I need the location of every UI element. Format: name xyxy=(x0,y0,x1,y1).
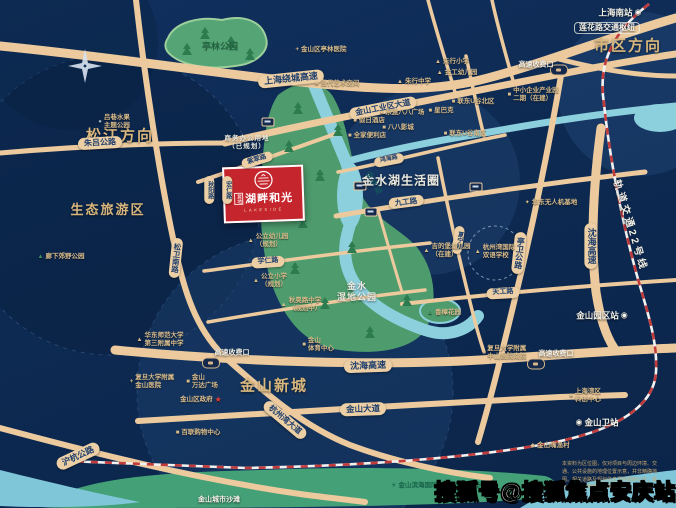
poi-familymart-label: 全家便利店 xyxy=(354,132,387,140)
poi-jinshan-wanda-plaza-label: 金山万达广场 xyxy=(192,374,218,390)
poi-east-china-drone-base-label: 华东无人机基地 xyxy=(532,199,578,207)
poi-public-primary-planned-school-icon: ▲ xyxy=(253,278,259,284)
poi-bailian-shopping-center: ■百联购物中心 xyxy=(176,429,221,437)
sohu-watermark: 搜狐号@搜狐焦点安庆站 xyxy=(435,476,676,506)
station-shanghai-south-label: 上海南站 xyxy=(599,8,633,19)
road-topright-b xyxy=(428,0,455,92)
label-city-beach-label: 金山城市沙滩 xyxy=(198,497,240,506)
poi-qiuhao-middle-planned-school-icon: ▲ xyxy=(281,302,287,308)
poi-modern-art-space-label: 当代艺术空间 xyxy=(320,80,359,88)
station-jinshanwei-label: 金山卫站 xyxy=(584,418,618,429)
poi-zhuhang-primary-school-label: 朱行小学 xyxy=(443,58,469,66)
poi-public-kindergarten-planned-label: 公立幼儿园（规划） xyxy=(256,233,289,249)
area-business-office-plot: 商务办公用地（已规划） xyxy=(225,135,270,151)
poi-jinshan-wanda-plaza: ■金山万达广场 xyxy=(186,374,218,390)
area-jinshan-new-town-label: 金山新城 xyxy=(240,378,308,397)
area-eco-tourism-label: 生态旅游区 xyxy=(70,202,145,218)
poi-lvxiang-fruit-park: ●吕巷水果主题公园 xyxy=(98,114,130,130)
poi-familymart: ■全家便利店 xyxy=(348,132,386,140)
poi-jingong-kindergarten: ▲金工幼儿园 xyxy=(437,69,477,77)
direction-downtown: 市区方向 xyxy=(594,38,662,57)
poi-jinshan-district-government-star-icon: ★ xyxy=(215,396,222,404)
road-zhulv-highway-label: 朱吕公路 xyxy=(84,137,116,149)
poi-sme-industrial-park-phase2-label: 中小企业产业园二期（在建） xyxy=(513,87,559,103)
poi-liandong-ugu-south: ■联东U谷南区 xyxy=(444,130,487,138)
disclaimer-line: 本资料为区位图，仅对项目与周边环境、交 xyxy=(562,461,672,469)
poi-ecnu-no3-affiliated-middle-label: 华东师范大学第三附属中学 xyxy=(144,332,183,348)
station-jinshan-park-station-icon: ◉ xyxy=(621,312,628,320)
road-qiuyang-road: 秋阳路 xyxy=(204,176,214,204)
poi-jinshanzui-fishing-village: ◆金山嘴渔村 xyxy=(530,442,569,450)
road-xueren-road-label: 学仁路 xyxy=(257,257,279,267)
poi-liandong-ugu-north-bldg-icon: ■ xyxy=(452,99,456,105)
area-eco-tourism: 生态旅游区 xyxy=(70,202,145,218)
poi-jingong-kindergarten-school-icon: ▲ xyxy=(437,70,443,76)
poi-jinshan-district-government: 金山区政府★ xyxy=(180,396,222,404)
poi-east-china-drone-base-drone-icon: ✦ xyxy=(525,200,530,206)
poi-holiday-hotel-label: 假日酒店 xyxy=(359,117,385,125)
poi-zhuhang-middle-school: ▲朱行中学 xyxy=(397,78,431,86)
station-shanghai-south-station-icon: ◉ xyxy=(635,9,642,17)
poi-baba-plaza-label: 东渡八八广场 xyxy=(385,109,424,117)
toll-gate-north-label: 高速收费口 xyxy=(519,62,554,71)
poi-langxia-country-park: ▲廊下郊野公园 xyxy=(38,253,85,261)
road-jiugong-road-label: 九工路 xyxy=(394,196,417,208)
poi-jinshan-sports-center-label: 金山体育中心 xyxy=(308,337,334,353)
poi-sme-industrial-park-phase2-bldg-icon: ■ xyxy=(507,92,511,98)
project-marker: 复地 湖畔和光 LAKESIDE xyxy=(222,165,305,224)
project-english-name: LAKESIDE xyxy=(244,206,284,212)
project-logo-icon xyxy=(253,170,274,191)
location-map: 复地 湖畔和光 LAKESIDE 松江方向市区方向生态旅游区金山新城金水湖生活圈… xyxy=(0,0,676,508)
poi-hangzhou-bay-bilingual-school: ▲杭州湾国际双语学校 xyxy=(475,244,515,260)
poi-baba-cinema-bldg-icon: ■ xyxy=(382,125,386,131)
poi-liandong-ugu-south-label: 联东U谷南区 xyxy=(449,130,486,138)
poi-jingong-kindergarten-label: 金工幼儿园 xyxy=(445,69,478,77)
poi-bay-area-innovation-center-bldg-icon: ■ xyxy=(569,393,573,399)
road-tiangong-road-label: 天工路 xyxy=(492,288,513,298)
poi-ecnu-no3-affiliated-middle: ▲华东师范大学第三附属中学 xyxy=(137,332,184,348)
road-shenhai-expressway-v-label: 沈海高速 xyxy=(585,228,596,264)
road-xueren-road: 学仁路 xyxy=(251,255,285,268)
hub-lianhua-road-label: 莲花路交通枢纽 xyxy=(579,23,635,33)
area-business-office-plot-label: 商务办公用地（已规划） xyxy=(225,135,270,151)
poi-baba-plaza-bldg-icon: ■ xyxy=(380,110,384,116)
toll-booth-icon-east xyxy=(527,359,545,370)
road-jinshan-avenue-label: 金山大道 xyxy=(346,403,380,415)
poi-public-kindergarten-planned-school-icon: ▲ xyxy=(248,238,254,244)
station-jinshanwei: ◉金山卫站 xyxy=(576,418,619,429)
road-shenhai-expressway-h-label: 沈海高速 xyxy=(350,360,386,373)
poi-public-primary-planned-label: 公立小学（规划） xyxy=(261,273,287,289)
poi-kidcastle-kindergarten-label: 吉的堡幼儿园（在建） xyxy=(431,243,470,259)
poi-fudan-jinshan-hospital-hosp-icon: + xyxy=(130,379,134,385)
road-tiangong xyxy=(402,280,676,304)
poi-zhuhang-middle-school-label: 朱行中学 xyxy=(405,78,431,86)
poi-hangzhou-bay-bilingual-school-label: 杭州湾国际双语学校 xyxy=(483,244,516,260)
poi-holiday-hotel-bldg-icon: ■ xyxy=(353,118,357,124)
poi-jinshan-sports-center: ■金山体育中心 xyxy=(302,337,334,353)
poi-tinglin-hospital: +金山区亭林医院 xyxy=(295,46,346,54)
station-jinshanwei-station-icon: ◉ xyxy=(576,419,583,427)
bus-stop-icon-1 xyxy=(262,118,275,127)
poi-camphor-garden: ▲香樟花园 xyxy=(427,309,461,317)
toll-gate-north: 高速收费口 xyxy=(519,62,554,71)
poi-liandong-ugu-north-label: 联东U谷北区 xyxy=(457,98,494,106)
road-zhulv-highway: 朱吕公路 xyxy=(78,136,123,150)
poi-bailian-shopping-center-label: 百联购物中心 xyxy=(181,429,220,437)
poi-zhuhang-middle-school-school-icon: ▲ xyxy=(397,79,403,85)
poi-holiday-hotel: ■假日酒店 xyxy=(353,117,385,125)
poi-hangzhou-bay-bilingual-school-school-icon: ▲ xyxy=(475,249,481,255)
poi-jinshanzui-fishing-village-label: 金山嘴渔村 xyxy=(537,442,570,450)
poi-zhongshan-hospital-south-hosp-icon: + xyxy=(482,350,486,356)
poi-tinglin-hospital-hosp-icon: + xyxy=(295,47,299,53)
map-base-layer xyxy=(0,0,676,508)
poi-jinshan-district-government-label: 金山区政府 xyxy=(180,396,213,404)
poi-qiuhao-middle-planned: ▲秋昊路中学（规划中） xyxy=(281,297,321,313)
poi-binhai-intl-resort-palm-icon: ☀ xyxy=(391,483,396,489)
poi-kidcastle-kindergarten-school-icon: ▲ xyxy=(424,248,430,254)
poi-familymart-shop-icon: ■ xyxy=(348,133,352,139)
poi-fudan-jinshan-hospital: +复旦大学附属金山医院 xyxy=(130,374,175,390)
poi-starbucks: ■星巴克 xyxy=(428,107,453,115)
road-qiuyang-road-label: 秋阳路 xyxy=(205,181,213,199)
poi-zhongshan-hospital-south: +复旦大学附属中山医院南院 xyxy=(482,345,527,361)
poi-liandong-ugu-south-bldg-icon: ■ xyxy=(444,131,448,137)
poi-liandong-ugu-north: ■联东U谷北区 xyxy=(452,98,495,106)
bus-stop-icon-3 xyxy=(470,183,483,192)
area-jinshui-wetland-park: 金水湿地公园 xyxy=(337,281,377,304)
poi-kidcastle-kindergarten: ▲吉的堡幼儿园（在建） xyxy=(424,243,471,259)
poi-lvxiang-fruit-park-fish-icon: ● xyxy=(98,119,102,125)
label-tinglin-park: 亭林公园 xyxy=(202,41,238,52)
poi-modern-art-space: ■当代艺术空间 xyxy=(315,80,360,88)
poi-public-kindergarten-planned: ▲公立幼儿园（规划） xyxy=(248,233,288,249)
toll-gate-east-label: 高速收费口 xyxy=(539,351,574,360)
poi-zhuhang-primary-school: ▲朱行小学 xyxy=(435,58,469,66)
poi-camphor-garden-label: 香樟花园 xyxy=(435,309,461,317)
direction-downtown-label: 市区方向 xyxy=(594,38,662,57)
poi-public-primary-planned: ▲公立小学（规划） xyxy=(253,273,287,289)
station-jinshan-park-label: 金山园区站 xyxy=(576,311,619,322)
poi-east-china-drone-base: ✦华东无人机基地 xyxy=(525,199,578,207)
poi-jinshanzui-fishing-village-boat-icon: ◆ xyxy=(530,443,535,449)
poi-ecnu-no3-affiliated-middle-school-icon: ▲ xyxy=(137,337,143,343)
poi-baba-cinema-label: 八八影城 xyxy=(388,124,414,132)
road-shenhai-expressway-v: 沈海高速 xyxy=(584,223,597,269)
poi-modern-art-space-bldg-icon: ■ xyxy=(315,81,319,87)
station-jinshan-park: 金山园区站◉ xyxy=(576,311,628,322)
area-jinshan-new-town: 金山新城 xyxy=(240,378,308,397)
label-city-beach: 金山城市沙滩 xyxy=(198,497,240,506)
poi-fudan-jinshan-hospital-label: 复旦大学附属金山医院 xyxy=(135,374,174,390)
poi-starbucks-shop-icon: ■ xyxy=(428,108,432,114)
poi-langxia-country-park-tree-icon: ▲ xyxy=(38,254,44,260)
hub-lianhua-road: 莲花路交通枢纽 xyxy=(574,22,640,34)
road-jinshan-avenue: 金山大道 xyxy=(340,402,386,416)
poi-sme-industrial-park-phase2: ■中小企业产业园二期（在建） xyxy=(507,87,558,103)
poi-bailian-shopping-center-shop-icon: ■ xyxy=(176,430,180,436)
toll-gate-west: 高速收费口 xyxy=(215,350,250,359)
road-tiangong-road: 天工路 xyxy=(486,287,520,299)
poi-jinshan-sports-center-bldg-icon: ■ xyxy=(302,342,306,348)
bus-stop-icon-4 xyxy=(365,208,378,217)
road-hongren-road-label: 宏仁路 xyxy=(223,181,231,199)
poi-baba-plaza: ■东渡八八广场 xyxy=(380,109,425,117)
poi-lvxiang-fruit-park-label: 吕巷水果主题公园 xyxy=(104,114,130,130)
label-tinglin-park-label: 亭林公园 xyxy=(202,41,238,52)
area-jinshui-wetland-park-label: 金水湿地公园 xyxy=(337,281,377,304)
station-shanghai-south: 上海南站◉ xyxy=(599,8,642,19)
project-brand: 复地 xyxy=(234,193,243,205)
poi-starbucks-label: 星巴克 xyxy=(434,107,454,115)
toll-gate-east: 高速收费口 xyxy=(539,351,574,360)
poi-camphor-garden-tree-icon: ▲ xyxy=(427,310,433,316)
poi-zhongshan-hospital-south-label: 复旦大学附属中山医院南院 xyxy=(487,345,526,361)
road-shenhai-expressway-h: 沈海高速 xyxy=(344,359,392,374)
poi-jinshan-wanda-plaza-bldg-icon: ■ xyxy=(186,379,190,385)
poi-qiuhao-middle-planned-label: 秋昊路中学（规划中） xyxy=(289,297,322,313)
poi-bay-area-innovation-center: ■上海湾区科创中心 xyxy=(569,388,601,404)
toll-gate-west-label: 高速收费口 xyxy=(215,350,250,359)
poi-baba-cinema: ■八八影城 xyxy=(382,124,414,132)
poi-tinglin-hospital-label: 金山区亭林医院 xyxy=(301,46,347,54)
poi-langxia-country-park-label: 廊下郊野公园 xyxy=(45,253,84,261)
road-hongren-road: 宏仁路 xyxy=(222,176,232,204)
poi-zhuhang-primary-school-school-icon: ▲ xyxy=(435,59,441,65)
toll-booth-icon-west xyxy=(202,358,220,369)
poi-bay-area-innovation-center-label: 上海湾区科创中心 xyxy=(575,388,601,404)
project-name: 湖畔和光 xyxy=(245,189,294,207)
